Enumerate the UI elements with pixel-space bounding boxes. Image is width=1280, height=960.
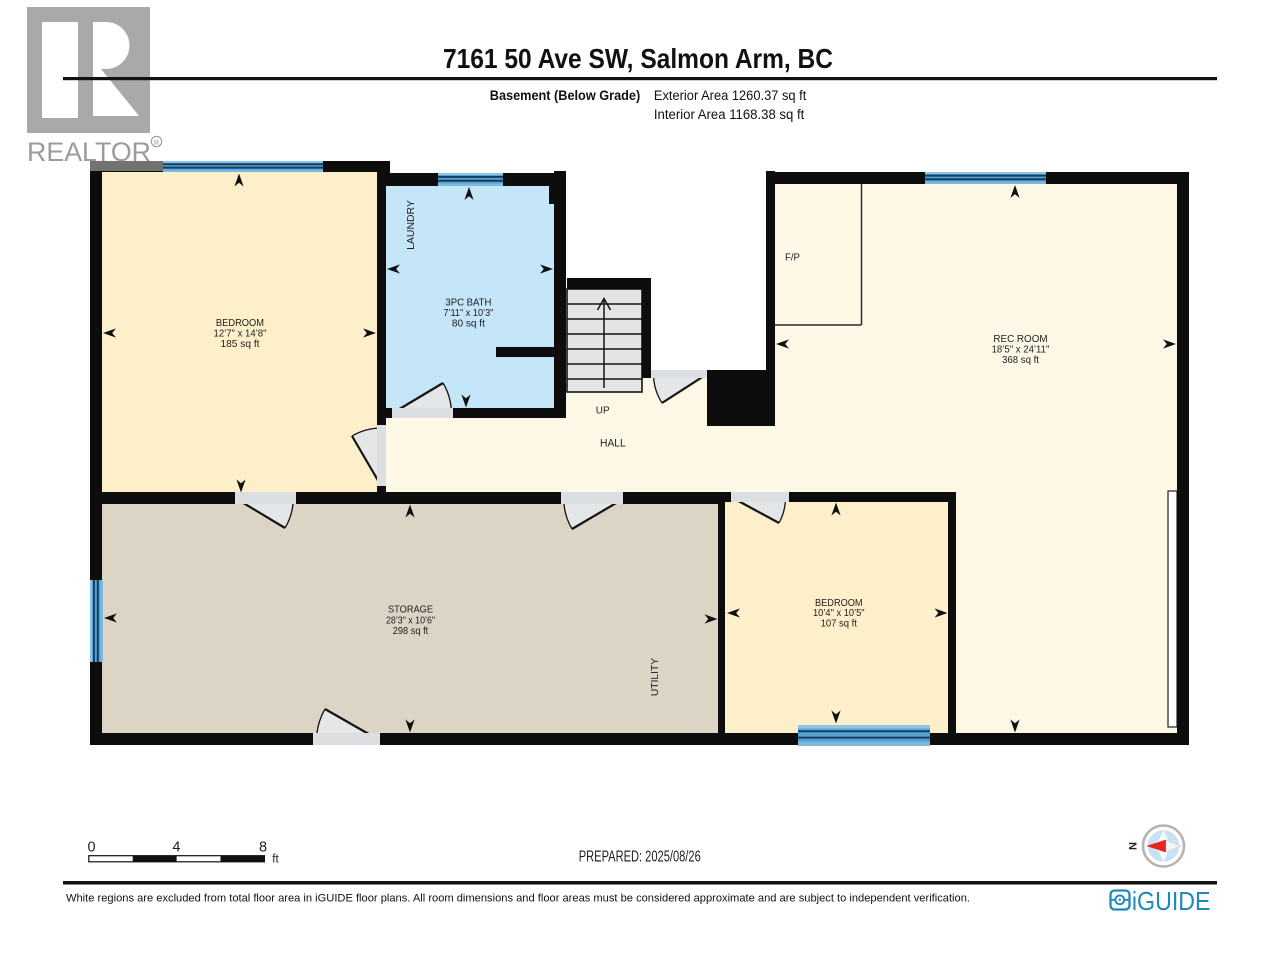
- svg-text:UP: UP: [596, 406, 610, 417]
- svg-text:HALL: HALL: [600, 438, 626, 450]
- svg-text:ft: ft: [272, 854, 279, 866]
- svg-text:White regions are excluded fro: White regions are excluded from total fl…: [66, 892, 970, 904]
- svg-text:0: 0: [88, 839, 96, 855]
- svg-text:R: R: [154, 138, 159, 147]
- svg-text:7161 50 Ave SW, Salmon Arm, BC: 7161 50 Ave SW, Salmon Arm, BC: [443, 42, 833, 74]
- svg-text:UTILITY: UTILITY: [650, 658, 661, 697]
- svg-text:368 sq ft: 368 sq ft: [1002, 354, 1039, 366]
- svg-text:PREPARED: 2025/08/26: PREPARED: 2025/08/26: [579, 849, 701, 866]
- svg-text:N: N: [1128, 842, 1140, 850]
- svg-text:iGUIDE: iGUIDE: [1132, 886, 1211, 916]
- svg-text:Exterior Area 1260.37 sq ft: Exterior Area 1260.37 sq ft: [654, 88, 806, 104]
- svg-text:107 sq ft: 107 sq ft: [821, 617, 857, 629]
- svg-text:Basement (Below Grade): Basement (Below Grade): [490, 88, 641, 104]
- svg-text:Interior Area 1168.38 sq ft: Interior Area 1168.38 sq ft: [654, 107, 804, 123]
- svg-text:8: 8: [259, 839, 267, 855]
- svg-text:LAUNDRY: LAUNDRY: [405, 200, 417, 250]
- svg-text:298 sq ft: 298 sq ft: [393, 625, 429, 637]
- svg-text:185 sq ft: 185 sq ft: [221, 338, 260, 350]
- svg-text:REALTOR: REALTOR: [27, 137, 151, 167]
- svg-text:4: 4: [172, 839, 180, 855]
- svg-text:F/P: F/P: [785, 253, 800, 264]
- svg-text:80 sq ft: 80 sq ft: [452, 317, 485, 329]
